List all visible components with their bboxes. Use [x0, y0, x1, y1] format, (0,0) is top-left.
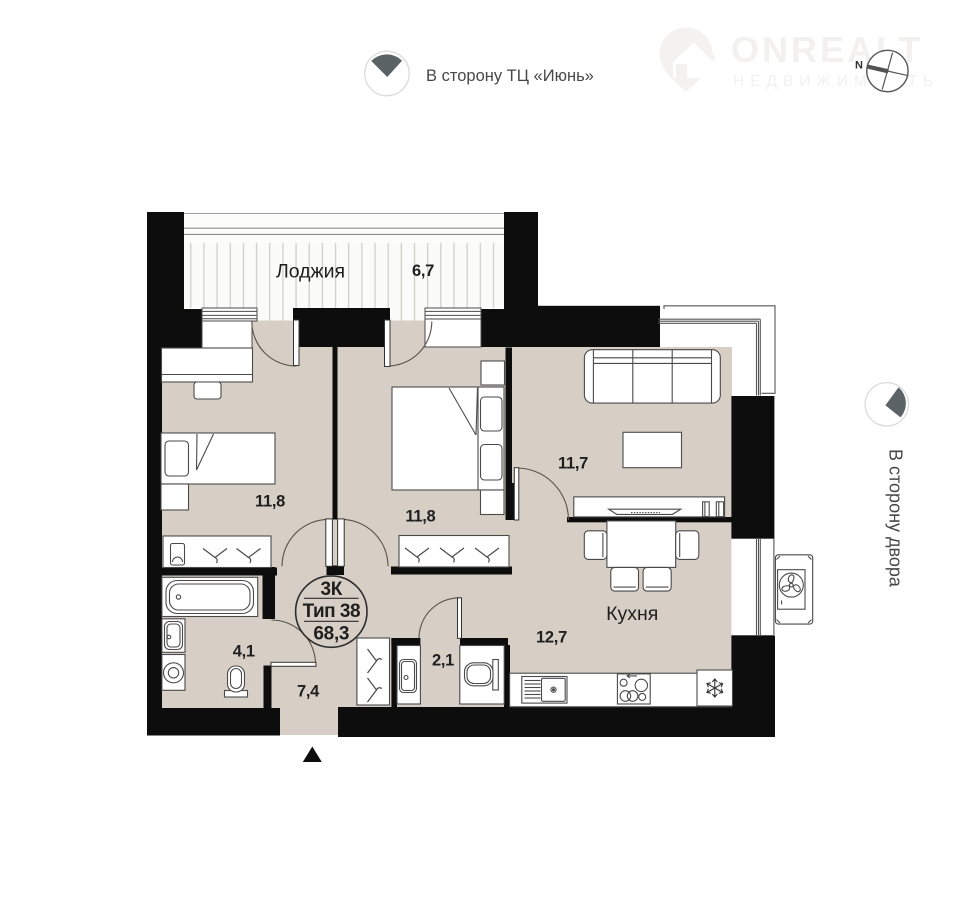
svg-text:НЕДВИЖИМОСТЬ: НЕДВИЖИМОСТЬ	[733, 73, 939, 90]
svg-text:11,8: 11,8	[405, 507, 435, 525]
svg-text:11,7: 11,7	[558, 455, 588, 473]
svg-text:11,8: 11,8	[255, 493, 285, 511]
svg-text:Кухня: Кухня	[606, 603, 658, 625]
svg-text:Лоджия: Лоджия	[276, 261, 345, 283]
svg-text:N: N	[855, 60, 863, 72]
svg-text:68,3: 68,3	[313, 624, 349, 645]
svg-text:Тип 38: Тип 38	[303, 601, 360, 622]
svg-text:4,1: 4,1	[233, 643, 255, 661]
svg-text:В сторону двора: В сторону двора	[886, 449, 906, 588]
svg-text:3К: 3К	[321, 579, 343, 600]
svg-text:6,7: 6,7	[412, 262, 434, 280]
svg-text:В сторону ТЦ «Июнь»: В сторону ТЦ «Июнь»	[426, 67, 594, 85]
svg-text:7,4: 7,4	[297, 683, 320, 701]
svg-text:12,7: 12,7	[536, 629, 567, 647]
svg-text:2,1: 2,1	[432, 652, 454, 670]
